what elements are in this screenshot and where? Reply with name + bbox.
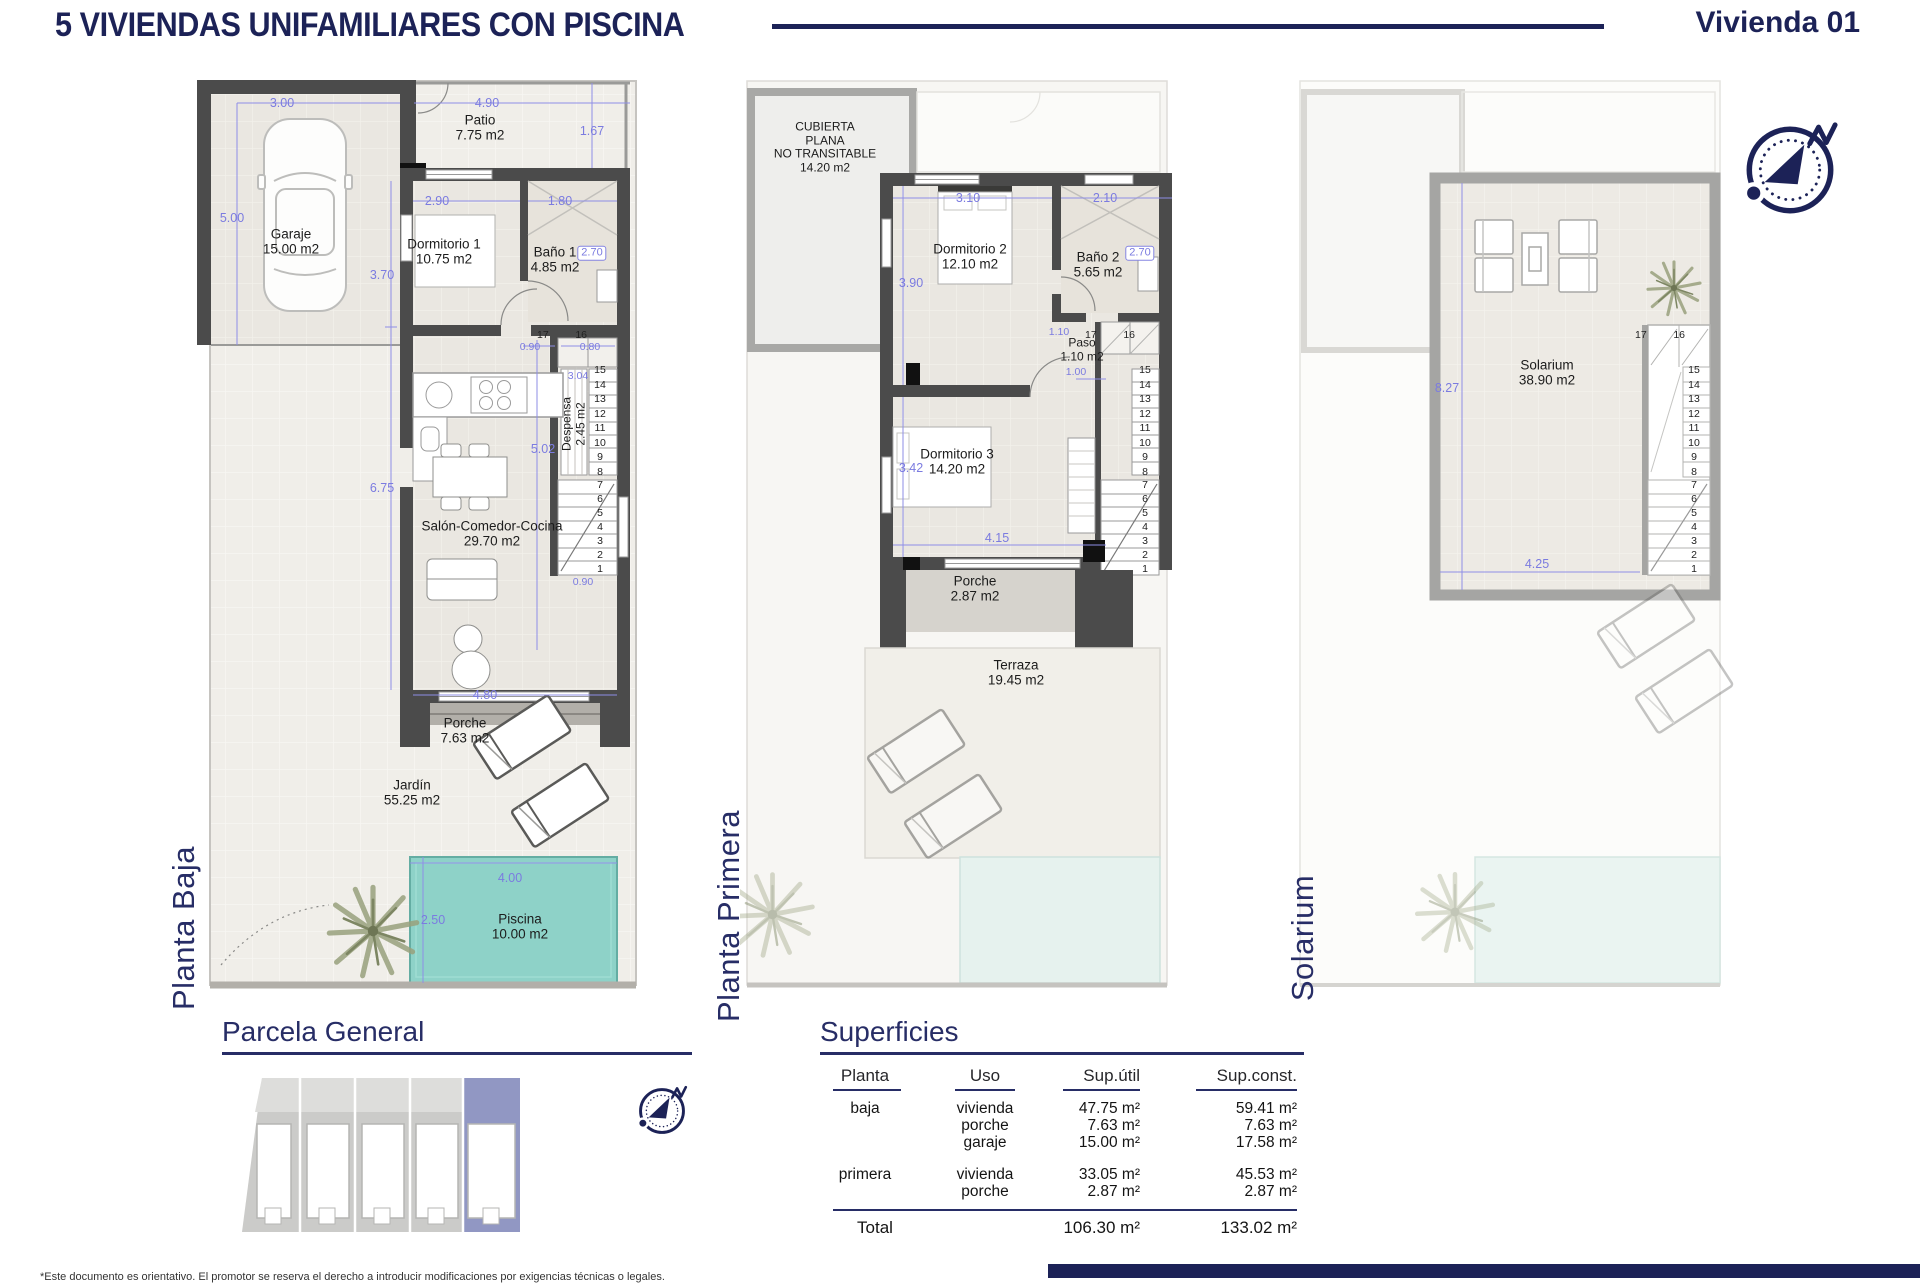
stair-number: 16 bbox=[575, 329, 587, 341]
dim-piscina-height: 2.50 bbox=[421, 913, 445, 927]
table-cell: 47.75 m² bbox=[1020, 1100, 1140, 1118]
stair-number: 12 bbox=[594, 408, 606, 420]
stair-number: 17 bbox=[537, 329, 549, 341]
room-label-garaje: Garaje 15.00 m2 bbox=[263, 227, 319, 258]
stair-number: 17 bbox=[1085, 329, 1097, 341]
stair-number: 10 bbox=[1688, 437, 1700, 449]
table-cell: 2.87 m² bbox=[1020, 1183, 1140, 1201]
stair-number: 6 bbox=[1142, 493, 1148, 505]
dim-bano2-width: 2.10 bbox=[1093, 191, 1117, 205]
planta-baja-plan: Patio 7.75 m2 3.00 4.90 5.00 1.67 Garaje… bbox=[171, 67, 641, 1017]
plan-name-planta-primera: Planta Primera bbox=[711, 810, 747, 1022]
plot-number-01: 01 bbox=[474, 1155, 507, 1188]
unit-label: Vivienda 01 bbox=[1560, 6, 1860, 40]
stair-number: 9 bbox=[1691, 451, 1697, 463]
room-label-piscina: Piscina 10.00 m2 bbox=[492, 912, 548, 943]
dim-dormitorio2-height: 3.90 bbox=[899, 276, 923, 290]
stair-number: 13 bbox=[1688, 393, 1700, 405]
parcela-rule bbox=[222, 1052, 692, 1055]
col-header-planta: Planta bbox=[815, 1066, 915, 1086]
stair-numbers-lower: 7654321 bbox=[1142, 479, 1148, 575]
superficies-rule bbox=[820, 1052, 1304, 1055]
stair-number: 15 bbox=[1688, 364, 1700, 376]
dim-dormitorio3-height: 3.42 bbox=[899, 461, 923, 475]
stair-number: 7 bbox=[1691, 479, 1697, 491]
stair-number: 1 bbox=[1142, 563, 1148, 575]
stair-numbers-lower: 7654321 bbox=[597, 479, 603, 575]
disclaimer-text: *Este documento es orientativo. El promo… bbox=[40, 1271, 665, 1283]
header-underline bbox=[955, 1089, 1015, 1091]
stair-numbers-top: 1716 bbox=[1085, 329, 1135, 341]
stair-numbers-upper: 15141312111098 bbox=[1139, 364, 1151, 478]
stair-numbers-upper: 15141312111098 bbox=[1688, 364, 1700, 478]
header-underline bbox=[1063, 1089, 1140, 1091]
dim-solarium-height: 8.27 bbox=[1435, 381, 1459, 395]
parcela-diagram: 05 04 03 02 01 bbox=[235, 1068, 695, 1238]
dim-door-salon: 0.90 bbox=[573, 577, 593, 589]
dim-dormitorio1-width: 2.90 bbox=[425, 194, 449, 208]
stair-number: 2 bbox=[1691, 549, 1697, 561]
dim-dormitorio2-width: 3.10 bbox=[956, 191, 980, 205]
room-label-salon: Salón-Comedor-Cocina 29.70 m2 bbox=[421, 519, 562, 550]
stair-number: 3 bbox=[597, 535, 603, 547]
stair-number: 16 bbox=[1123, 329, 1135, 341]
stair-number: 2 bbox=[597, 549, 603, 561]
stair-number: 14 bbox=[594, 379, 606, 391]
plot-number-03: 03 bbox=[365, 1155, 398, 1188]
dim-door-b: 0.80 bbox=[580, 342, 600, 354]
stair-number: 4 bbox=[597, 521, 603, 533]
stair-number: 7 bbox=[597, 479, 603, 491]
stair-number: 2 bbox=[1142, 549, 1148, 561]
total-label: Total bbox=[815, 1218, 935, 1238]
room-label-terraza: Terraza 19.45 m2 bbox=[988, 658, 1044, 689]
dim-stairs-height: 5.02 bbox=[531, 442, 555, 456]
plot-number-04: 04 bbox=[311, 1155, 345, 1188]
room-label-bano1: Baño 1 4.85 m2 bbox=[531, 245, 580, 276]
dim-dormitorio3-width: 4.15 bbox=[985, 531, 1009, 545]
plot-number-02: 02 bbox=[419, 1155, 452, 1188]
stair-number: 4 bbox=[1142, 521, 1148, 533]
stair-number: 12 bbox=[1688, 408, 1700, 420]
stair-number: 10 bbox=[594, 437, 606, 449]
car-icon bbox=[258, 119, 352, 311]
room-label-porche: Porche 7.63 m2 bbox=[441, 716, 490, 747]
stair-number: 8 bbox=[1142, 466, 1148, 478]
stair-number: 14 bbox=[1688, 379, 1700, 391]
stair-number: 9 bbox=[1142, 451, 1148, 463]
dim-patio-width: 4.90 bbox=[475, 96, 499, 110]
dim-bano2-height: 2.70 bbox=[1125, 246, 1154, 261]
dim-piscina-width: 4.00 bbox=[498, 871, 522, 885]
footer-bar bbox=[1048, 1264, 1920, 1278]
stair-number: 11 bbox=[1140, 422, 1151, 434]
col-header-sup-util: Sup.útil bbox=[1040, 1066, 1140, 1086]
stair-number: 15 bbox=[594, 364, 606, 376]
plot-number-05: 05 bbox=[257, 1155, 290, 1188]
solarium-plan: Solarium 38.90 m2 8.27 1716 151413121110… bbox=[1295, 67, 1855, 1017]
dim-despensa-height: 3.04 bbox=[568, 371, 588, 383]
stair-numbers-upper: 15141312111098 bbox=[594, 364, 606, 478]
planta-baja-drawing bbox=[171, 67, 641, 1017]
dim-dormitorio1-height: 3.70 bbox=[370, 268, 394, 282]
stair-number: 17 bbox=[1635, 329, 1647, 341]
stair-numbers-top: 1716 bbox=[537, 329, 587, 341]
col-header-uso: Uso bbox=[935, 1066, 1035, 1086]
ghost-floor-below bbox=[917, 92, 1160, 172]
dim-salon-height: 6.75 bbox=[370, 481, 394, 495]
col-header-sup-const: Sup.const. bbox=[1197, 1066, 1297, 1086]
stair-number: 5 bbox=[1691, 507, 1697, 519]
stair-number: 3 bbox=[1691, 535, 1697, 547]
header-underline bbox=[1196, 1089, 1297, 1091]
dim-stairs-width: 4.25 bbox=[1525, 557, 1549, 571]
dim-bano1-height: 2.70 bbox=[577, 246, 606, 261]
dim-salon-width: 4.80 bbox=[473, 688, 497, 702]
stair-number: 6 bbox=[597, 493, 603, 505]
stair-number: 12 bbox=[1139, 408, 1151, 420]
stair-number: 3 bbox=[1142, 535, 1148, 547]
room-label-jardin: Jardín 55.25 m2 bbox=[384, 778, 440, 809]
stair-number: 8 bbox=[597, 466, 603, 478]
table-cell: 7.63 m² bbox=[1020, 1117, 1140, 1135]
stair-number: 13 bbox=[1139, 393, 1151, 405]
title-rule bbox=[772, 24, 1604, 29]
stair-number: 1 bbox=[1691, 563, 1697, 575]
stair-number: 14 bbox=[1139, 379, 1151, 391]
planta-primera-plan: CUBIERTA PLANA NO TRANSITABLE 14.20 m2 3… bbox=[740, 67, 1185, 1017]
table-cell: 33.05 m² bbox=[1020, 1166, 1140, 1184]
table-cell: primera bbox=[815, 1166, 915, 1184]
stair-numbers-top: 1716 bbox=[1635, 329, 1685, 341]
stair-number: 5 bbox=[597, 507, 603, 519]
table-cell: baja bbox=[815, 1100, 915, 1118]
dim-garaje-height: 5.00 bbox=[220, 211, 244, 225]
pool-faint bbox=[1475, 857, 1720, 983]
table-cell: 15.00 m² bbox=[1020, 1134, 1140, 1152]
room-label-solarium: Solarium 38.90 m2 bbox=[1519, 358, 1575, 389]
total-separator bbox=[833, 1209, 1297, 1211]
parcela-compass bbox=[633, 1082, 691, 1140]
dim-door-paso: 1.00 bbox=[1066, 367, 1086, 379]
total-util: 106.30 m² bbox=[1020, 1218, 1140, 1238]
closet bbox=[1068, 438, 1095, 533]
stair-number: 8 bbox=[1691, 466, 1697, 478]
table-cell: 17.58 m² bbox=[1177, 1134, 1297, 1152]
stair-number: 5 bbox=[1142, 507, 1148, 519]
plan-name-solarium: Solarium bbox=[1285, 875, 1321, 1001]
parcela-heading: Parcela General bbox=[222, 1016, 424, 1048]
dim-patio-height: 1.67 bbox=[580, 124, 604, 138]
compass-icon bbox=[1745, 125, 1835, 211]
stair-number: 4 bbox=[1691, 521, 1697, 533]
room-label-despensa: Despensa 2.45 m2 bbox=[560, 397, 587, 451]
planta-primera-drawing bbox=[740, 67, 1185, 1017]
stair-number: 7 bbox=[1142, 479, 1148, 491]
sheet-title: 5 VIVIENDAS UNIFAMILIARES CON PISCINA bbox=[55, 6, 684, 45]
room-label-dormitorio1: Dormitorio 1 10.75 m2 bbox=[407, 237, 481, 268]
stair-number: 13 bbox=[594, 393, 606, 405]
room-label-dormitorio2: Dormitorio 2 12.10 m2 bbox=[933, 242, 1007, 273]
table-cell: 59.41 m² bbox=[1177, 1100, 1297, 1118]
room-label-cubierta: CUBIERTA PLANA NO TRANSITABLE 14.20 m2 bbox=[774, 121, 876, 176]
pool-faint bbox=[960, 857, 1160, 983]
stair-number: 16 bbox=[1673, 329, 1685, 341]
stair-number: 1 bbox=[597, 563, 603, 575]
dim-bano1-width: 1.80 bbox=[548, 194, 572, 208]
stair-number: 9 bbox=[597, 451, 603, 463]
stair-number: 10 bbox=[1139, 437, 1151, 449]
table-cell: 45.53 m² bbox=[1177, 1166, 1297, 1184]
total-const: 133.02 m² bbox=[1177, 1218, 1297, 1238]
solarium-drawing bbox=[1295, 67, 1855, 1017]
stair-number: 11 bbox=[595, 422, 606, 434]
superficies-heading: Superficies bbox=[820, 1016, 959, 1048]
plan-name-planta-baja: Planta Baja bbox=[166, 846, 202, 1010]
room-label-bano2: Baño 2 5.65 m2 bbox=[1074, 250, 1123, 281]
stair-number: 11 bbox=[1689, 422, 1700, 434]
table-cell: 2.87 m² bbox=[1177, 1183, 1297, 1201]
table-cell: 7.63 m² bbox=[1177, 1117, 1297, 1135]
compass-icon bbox=[638, 1087, 686, 1132]
room-label-patio: Patio 7.75 m2 bbox=[456, 113, 505, 144]
stair-number: 15 bbox=[1139, 364, 1151, 376]
plan-sheet: { "header": { "title": "5 VIVIENDAS UNIF… bbox=[0, 0, 1920, 1280]
stair-numbers-lower: 7654321 bbox=[1691, 479, 1697, 575]
header-underline bbox=[833, 1089, 901, 1091]
room-label-porche: Porche 2.87 m2 bbox=[951, 574, 1000, 605]
dim-garaje-width: 3.00 bbox=[270, 96, 294, 110]
stair-number: 6 bbox=[1691, 493, 1697, 505]
dim-door-a: 0.90 bbox=[520, 342, 540, 354]
room-label-dormitorio3: Dormitorio 3 14.20 m2 bbox=[920, 447, 994, 478]
